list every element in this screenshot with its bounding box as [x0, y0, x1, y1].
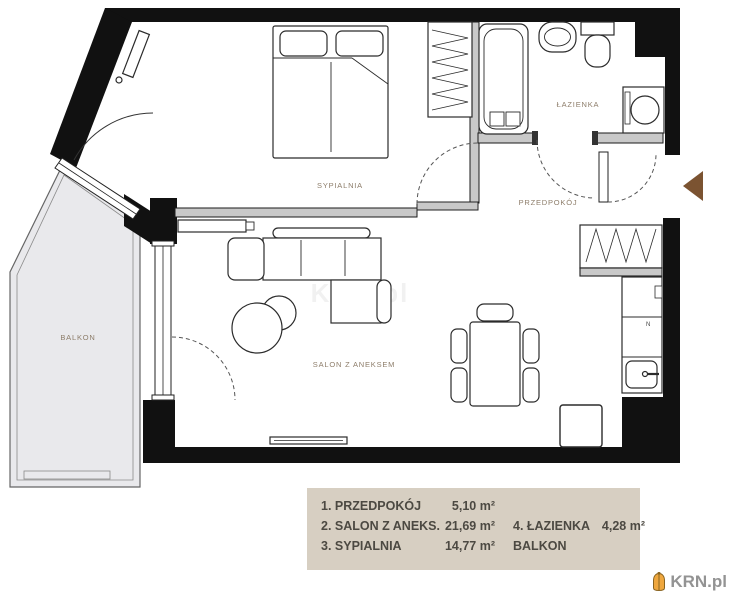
pillow	[336, 31, 383, 56]
kitchen-sink	[626, 361, 659, 388]
legend-item-area: 21,69 m²	[431, 519, 495, 534]
legend-item-label: 1. PRZEDPOKÓJ	[321, 499, 431, 514]
washbasin	[539, 22, 576, 52]
brand-watermark: KRN.pl	[651, 572, 727, 592]
fridge-detail	[655, 286, 662, 298]
entrance-door-leaf	[599, 152, 608, 202]
sofa-armrest	[228, 238, 264, 280]
kitchen-mark: N	[646, 322, 650, 328]
toilet	[581, 22, 614, 67]
window-cap-bottom	[152, 395, 174, 400]
legend: 1. PRZEDPOKÓJ 5,10 m² 2. SALON Z ANEKS. …	[307, 488, 640, 570]
balcony-label: BALKON	[60, 333, 95, 342]
bedroom-wardrobe	[428, 22, 472, 117]
pillow	[280, 31, 327, 56]
dining-chair	[451, 368, 467, 402]
washing-machine	[623, 87, 664, 133]
legend-spacer	[495, 519, 513, 534]
legend-spacer	[513, 499, 599, 514]
legend-item-label: 2. SALON Z ANEKS.	[321, 519, 431, 534]
tv-console	[178, 220, 254, 232]
hall-wardrobe	[580, 225, 662, 276]
legend-item-label: 3. SYPIALNIA	[321, 539, 431, 554]
window-cap-top	[152, 241, 174, 246]
salon-balcony-door-swing	[172, 337, 235, 400]
legend-item-label: 4. ŁAZIENKA	[513, 519, 599, 534]
balcony: BALKON	[10, 166, 140, 487]
dining-chair	[523, 329, 539, 363]
dining-chair	[523, 368, 539, 402]
living-room-label: SALON Z ANEKSEM	[313, 360, 395, 369]
legend-grid: 1. PRZEDPOKÓJ 5,10 m² 2. SALON Z ANEKS. …	[321, 499, 626, 554]
dining-set	[451, 304, 539, 406]
krn-lantern-icon	[651, 572, 667, 592]
bedroom-door-leaf	[417, 202, 478, 210]
salon-radiator	[270, 437, 347, 444]
diagonal-wall	[50, 8, 132, 168]
wardrobe-base	[580, 268, 662, 276]
bedroom-label: SYPIALNIA	[317, 181, 363, 190]
bathroom-label: ŁAZIENKA	[557, 100, 600, 109]
bedroom-door-swing	[417, 143, 478, 204]
bathtub	[479, 24, 528, 134]
bottom-wall	[143, 447, 680, 463]
dining-chair	[477, 304, 513, 321]
bathroom-door-swing	[537, 140, 595, 198]
legend-item-area: 4,28 m²	[599, 519, 645, 534]
bedroom: SYPIALNIA	[116, 22, 472, 190]
hallway-label: PRZEDPOKÓJ	[519, 198, 578, 207]
legend-item-area: 5,10 m²	[431, 499, 495, 514]
legend-spacer	[495, 499, 513, 514]
legend-item-area	[599, 539, 645, 554]
sofa-chaise	[331, 280, 381, 323]
brand-text: KRN.pl	[670, 572, 727, 592]
legend-item-area: 14,77 m²	[431, 539, 495, 554]
dining-table	[470, 322, 520, 406]
balcony-detail	[24, 471, 110, 479]
floor-cabinet	[560, 405, 602, 447]
entrance-arrow-icon	[683, 171, 703, 201]
entrance-door-swing	[608, 154, 656, 202]
legend-spacer	[495, 539, 513, 554]
bed	[273, 26, 388, 158]
legend-spacer	[599, 499, 645, 514]
living-room: SALON Z ANEKSEM	[178, 220, 539, 444]
coffee-tables	[232, 296, 296, 353]
hallway: PRZEDPOKÓJ	[519, 198, 662, 276]
door-jambs	[532, 131, 598, 145]
legend-item-label: BALKON	[513, 539, 599, 554]
bathtub-tap	[490, 112, 504, 126]
dining-chair	[451, 329, 467, 363]
bathtub-tap	[506, 112, 520, 126]
